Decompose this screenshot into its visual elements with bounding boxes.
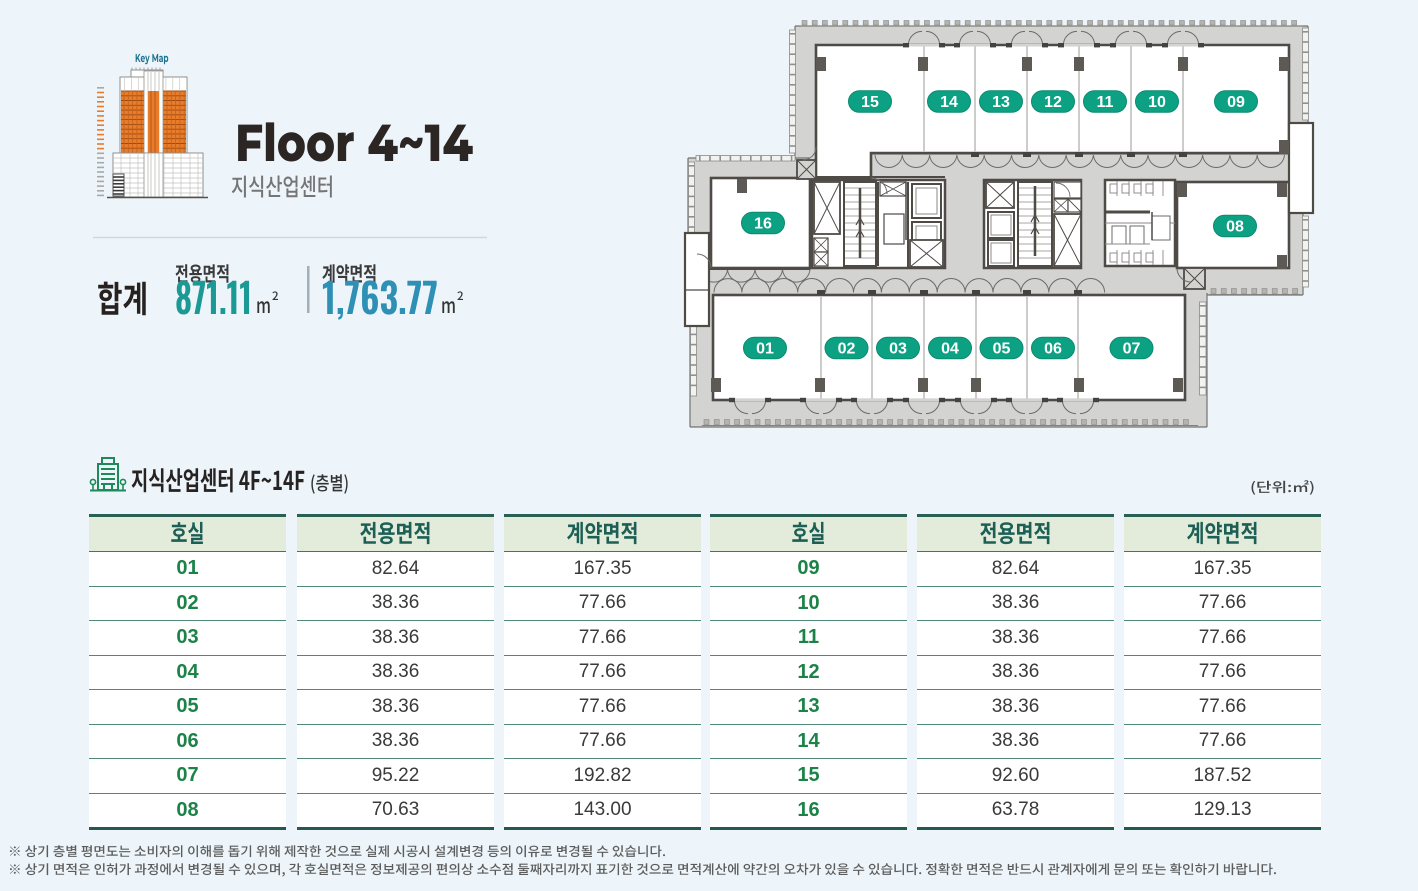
svg-text:02: 02 [838,341,856,358]
svg-text:04: 04 [941,341,959,358]
svg-text:10: 10 [1148,94,1166,111]
svg-text:09: 09 [1227,94,1245,111]
svg-text:07: 07 [1123,341,1141,358]
svg-text:15: 15 [861,94,879,111]
svg-text:08: 08 [1226,219,1244,236]
svg-text:01: 01 [756,341,774,358]
svg-text:13: 13 [992,94,1010,111]
svg-text:06: 06 [1044,341,1062,358]
svg-text:14: 14 [940,94,958,111]
svg-text:05: 05 [993,341,1011,358]
svg-text:16: 16 [754,216,772,233]
svg-text:12: 12 [1044,94,1062,111]
svg-text:03: 03 [889,341,907,358]
svg-text:11: 11 [1097,94,1114,111]
